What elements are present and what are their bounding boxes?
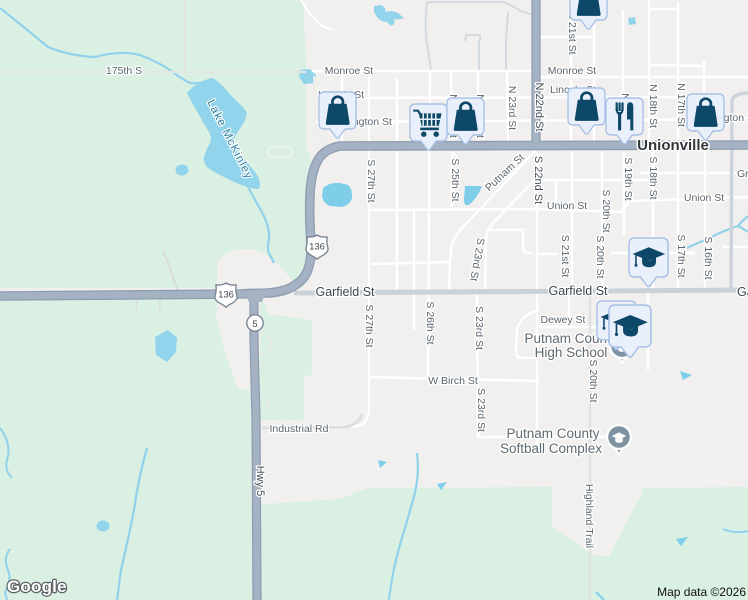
svg-text:S 23rd St: S 23rd St — [475, 388, 487, 432]
svg-text:Union St: Union St — [547, 200, 587, 212]
svg-text:Industrial Rd: Industrial Rd — [270, 423, 329, 435]
svg-text:Softball Complex: Softball Complex — [500, 441, 602, 456]
svg-text:S 19th St: S 19th St — [622, 157, 634, 200]
svg-text:Dewey St: Dewey St — [541, 314, 586, 326]
svg-text:Garfield St: Garfield St — [548, 284, 608, 298]
svg-text:S 16th St: S 16th St — [702, 236, 714, 279]
svg-text:Unionville: Unionville — [637, 137, 709, 154]
svg-text:Monroe St: Monroe St — [325, 65, 374, 77]
svg-text:136: 136 — [218, 290, 234, 301]
svg-text:W Birch St: W Birch St — [428, 375, 478, 387]
svg-text:Highland Trail: Highland Trail — [583, 484, 595, 548]
svg-text:136: 136 — [309, 242, 325, 253]
svg-text:Grant St: Grant St — [737, 168, 748, 180]
svg-text:S 20th St: S 20th St — [587, 359, 599, 402]
svg-text:Union St: Union St — [684, 192, 724, 204]
svg-text:S 22nd St: S 22nd St — [532, 156, 544, 204]
svg-text:S 17th St: S 17th St — [675, 234, 687, 277]
svg-text:Hwy 5: Hwy 5 — [254, 466, 266, 497]
svg-text:175th S: 175th S — [106, 65, 142, 77]
svg-text:S 20th St: S 20th St — [600, 189, 612, 232]
svg-text:S 27th St: S 27th St — [363, 304, 375, 347]
svg-text:Monroe St: Monroe St — [548, 65, 597, 77]
svg-text:S 27th St: S 27th St — [365, 159, 377, 202]
svg-text:S 23rd St: S 23rd St — [473, 306, 485, 350]
svg-text:N 22nd St: N 22nd St — [533, 83, 545, 132]
svg-text:Garfield St: Garfield St — [315, 285, 375, 299]
svg-text:Google: Google — [7, 577, 67, 596]
svg-text:N 17th St: N 17th St — [675, 83, 687, 127]
svg-text:S 21st St: S 21st St — [559, 235, 571, 278]
svg-text:S 25th St: S 25th St — [449, 158, 461, 201]
svg-text:Map data ©2026: Map data ©2026 — [657, 585, 746, 599]
svg-text:High School: High School — [535, 345, 608, 360]
svg-text:5: 5 — [252, 319, 257, 330]
svg-text:Putnam County: Putnam County — [506, 426, 599, 441]
svg-text:S 26th St: S 26th St — [424, 301, 436, 344]
svg-text:N 23rd St: N 23rd St — [506, 86, 518, 130]
svg-text:N 18th St: N 18th St — [647, 84, 659, 128]
svg-text:S 18th St: S 18th St — [647, 156, 659, 199]
svg-text:Garfield St: Garfield St — [737, 285, 748, 299]
svg-text:S 20th St: S 20th St — [594, 235, 606, 278]
